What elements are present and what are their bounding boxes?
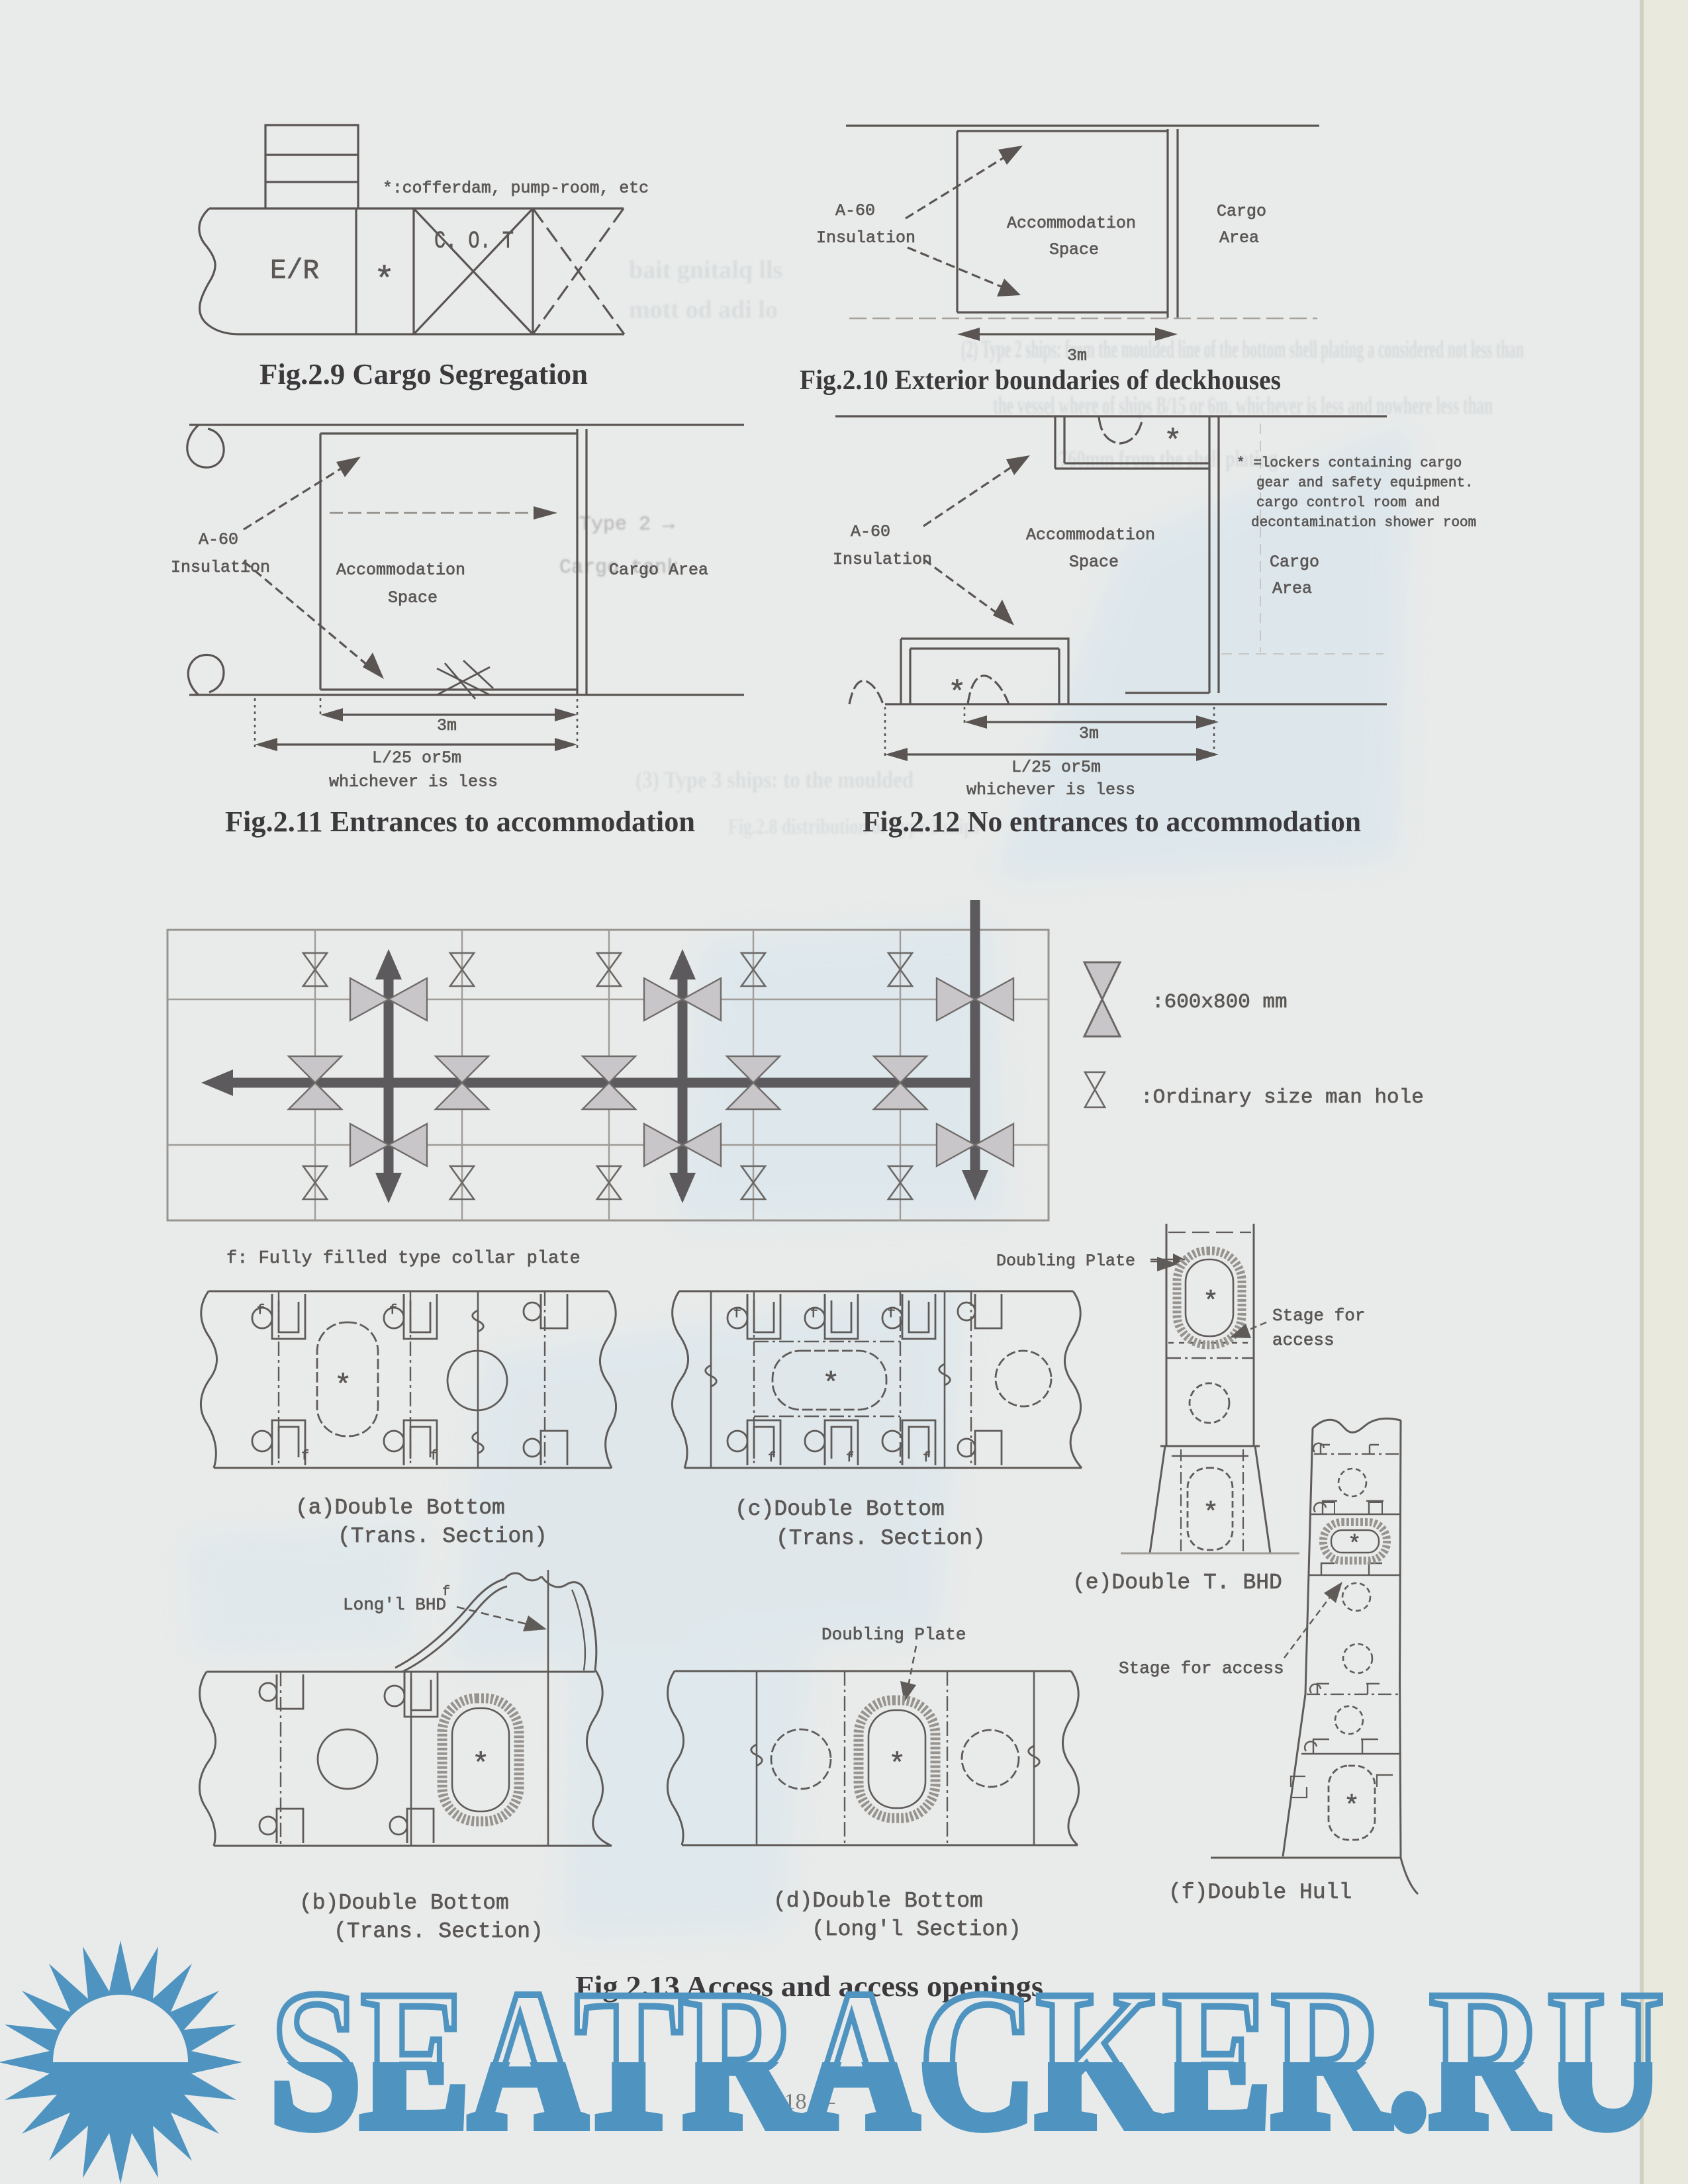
svg-text:(3) Type 3 ships: to the mould: (3) Type 3 ships: to the moulded — [635, 766, 914, 793]
svg-text:f: f — [389, 1303, 397, 1318]
svg-text:f: f — [923, 1451, 931, 1466]
svg-text:*: * — [888, 1749, 906, 1782]
svg-text:whichever is less: whichever is less — [329, 772, 498, 792]
svg-text:Accommodation: Accommodation — [1007, 214, 1136, 233]
svg-text:Cargo: Cargo — [1217, 202, 1266, 221]
svg-text:decontamination shower room: decontamination shower room — [1251, 516, 1476, 531]
svg-text:*: * — [334, 1370, 352, 1403]
svg-text:access: access — [1272, 1330, 1335, 1350]
svg-text:Insulation: Insulation — [171, 558, 270, 577]
svg-text:Space: Space — [1049, 240, 1099, 259]
svg-text:Insulation: Insulation — [816, 228, 915, 248]
svg-text:*: * — [472, 1749, 489, 1782]
svg-text:(Trans. Section): (Trans. Section) — [334, 1919, 543, 1944]
svg-text::600x800 mm: :600x800 mm — [1152, 991, 1288, 1014]
svg-text:L/25 or5m: L/25 or5m — [372, 749, 461, 768]
svg-text:f: Fully filled type collar pl: f: Fully filled type collar plate — [226, 1249, 581, 1269]
svg-text:Fig.2.9 Cargo Segregation: Fig.2.9 Cargo Segregation — [259, 358, 588, 390]
svg-text:Accommodation: Accommodation — [336, 561, 465, 580]
svg-text:(2) Type 2 ships: from the mo: (2) Type 2 ships: from the moulded line … — [961, 336, 1524, 363]
svg-text:(f)Double Hull: (f)Double Hull — [1168, 1880, 1352, 1905]
svg-text:Stage for access: Stage for access — [1119, 1659, 1284, 1678]
svg-text:f: f — [733, 1306, 741, 1322]
svg-text:A-60: A-60 — [835, 201, 875, 220]
svg-text:f: f — [430, 1449, 438, 1464]
svg-text:L/25 or5m: L/25 or5m — [1011, 758, 1101, 777]
svg-text:*: * — [1203, 1499, 1219, 1529]
svg-text:3m: 3m — [1067, 346, 1087, 365]
svg-text:*:cofferdam, pump-room, etc: *:cofferdam, pump-room, etc — [383, 179, 649, 198]
svg-text:(Trans. Section): (Trans. Section) — [776, 1526, 986, 1551]
svg-text:*: * — [1348, 1533, 1361, 1558]
svg-text:*: * — [822, 1368, 839, 1401]
svg-text:(c)Double Bottom: (c)Double Bottom — [735, 1497, 945, 1522]
svg-text:3m: 3m — [1079, 724, 1099, 743]
svg-text:(b)Double Bottom: (b)Double Bottom — [299, 1891, 509, 1915]
svg-text:Accommodation: Accommodation — [1026, 525, 1155, 545]
svg-text:f: f — [846, 1451, 854, 1466]
svg-text:A-60: A-60 — [851, 522, 890, 541]
svg-text::Ordinary size man hole: :Ordinary size man hole — [1141, 1086, 1424, 1109]
svg-text:bait gnitalq lls: bait gnitalq lls — [629, 256, 782, 284]
svg-text:E/R: E/R — [270, 255, 319, 287]
svg-text:mott od adi lo: mott od adi lo — [629, 296, 778, 324]
svg-text:Fig.2.10 Exterior boundaries: Fig.2.10 Exterior boundaries of deckhous… — [800, 365, 1281, 396]
svg-text:f: f — [810, 1306, 818, 1322]
svg-text:Space: Space — [388, 588, 438, 608]
svg-text:Space: Space — [1069, 553, 1119, 572]
svg-text:*: * — [374, 261, 395, 300]
svg-text:Fig.2.12 No entrances to acco: Fig.2.12 No entrances to accommodation — [863, 805, 1361, 838]
svg-text:(a)Double Bottom: (a)Double Bottom — [295, 1496, 505, 1520]
svg-text:Type 2 →: Type 2 → — [579, 514, 675, 536]
svg-text:f: f — [768, 1451, 776, 1466]
svg-text:(Long'l Section): (Long'l Section) — [812, 1917, 1021, 1942]
svg-text:3m: 3m — [437, 716, 457, 735]
svg-text:(e)Double T. BHD: (e)Double T. BHD — [1072, 1570, 1282, 1595]
svg-text:cargo control room and: cargo control room and — [1256, 496, 1440, 511]
svg-text:Stage for: Stage for — [1272, 1306, 1365, 1326]
svg-text:Long'l BHD: Long'l BHD — [343, 1595, 446, 1615]
svg-text:* =lockers containing cargo: * =lockers containing cargo — [1237, 456, 1462, 471]
svg-text:(Trans. Section): (Trans. Section) — [338, 1524, 547, 1549]
svg-text:Insulation: Insulation — [833, 550, 932, 569]
svg-text:Doubling Plate: Doubling Plate — [821, 1625, 966, 1645]
svg-text:*: * — [1344, 1792, 1360, 1822]
svg-text:whichever is less: whichever is less — [966, 780, 1135, 799]
svg-text:gear and safety equipment.: gear and safety equipment. — [1256, 476, 1474, 491]
svg-text:*: * — [1203, 1288, 1219, 1318]
svg-text:C. O. T: C. O. T — [434, 228, 514, 255]
svg-text:*: * — [1164, 425, 1182, 459]
svg-text:*: * — [948, 676, 966, 711]
svg-text:Area: Area — [1272, 579, 1312, 598]
svg-text:A-60: A-60 — [199, 530, 238, 549]
svg-text:f: f — [257, 1303, 265, 1318]
svg-text:Area: Area — [1219, 228, 1259, 248]
svg-text:Cargo Area: Cargo Area — [609, 561, 708, 580]
svg-text:(d)Double Bottom: (d)Double Bottom — [773, 1889, 983, 1913]
svg-text:f: f — [301, 1449, 309, 1464]
svg-text:f: f — [888, 1306, 896, 1322]
svg-text:Cargo: Cargo — [1270, 553, 1319, 572]
svg-text:f: f — [442, 1584, 450, 1600]
svg-text:Doubling Plate: Doubling Plate — [996, 1251, 1135, 1271]
svg-text:Fig.2.11 Entrances to accommo: Fig.2.11 Entrances to accommodation — [225, 805, 695, 838]
